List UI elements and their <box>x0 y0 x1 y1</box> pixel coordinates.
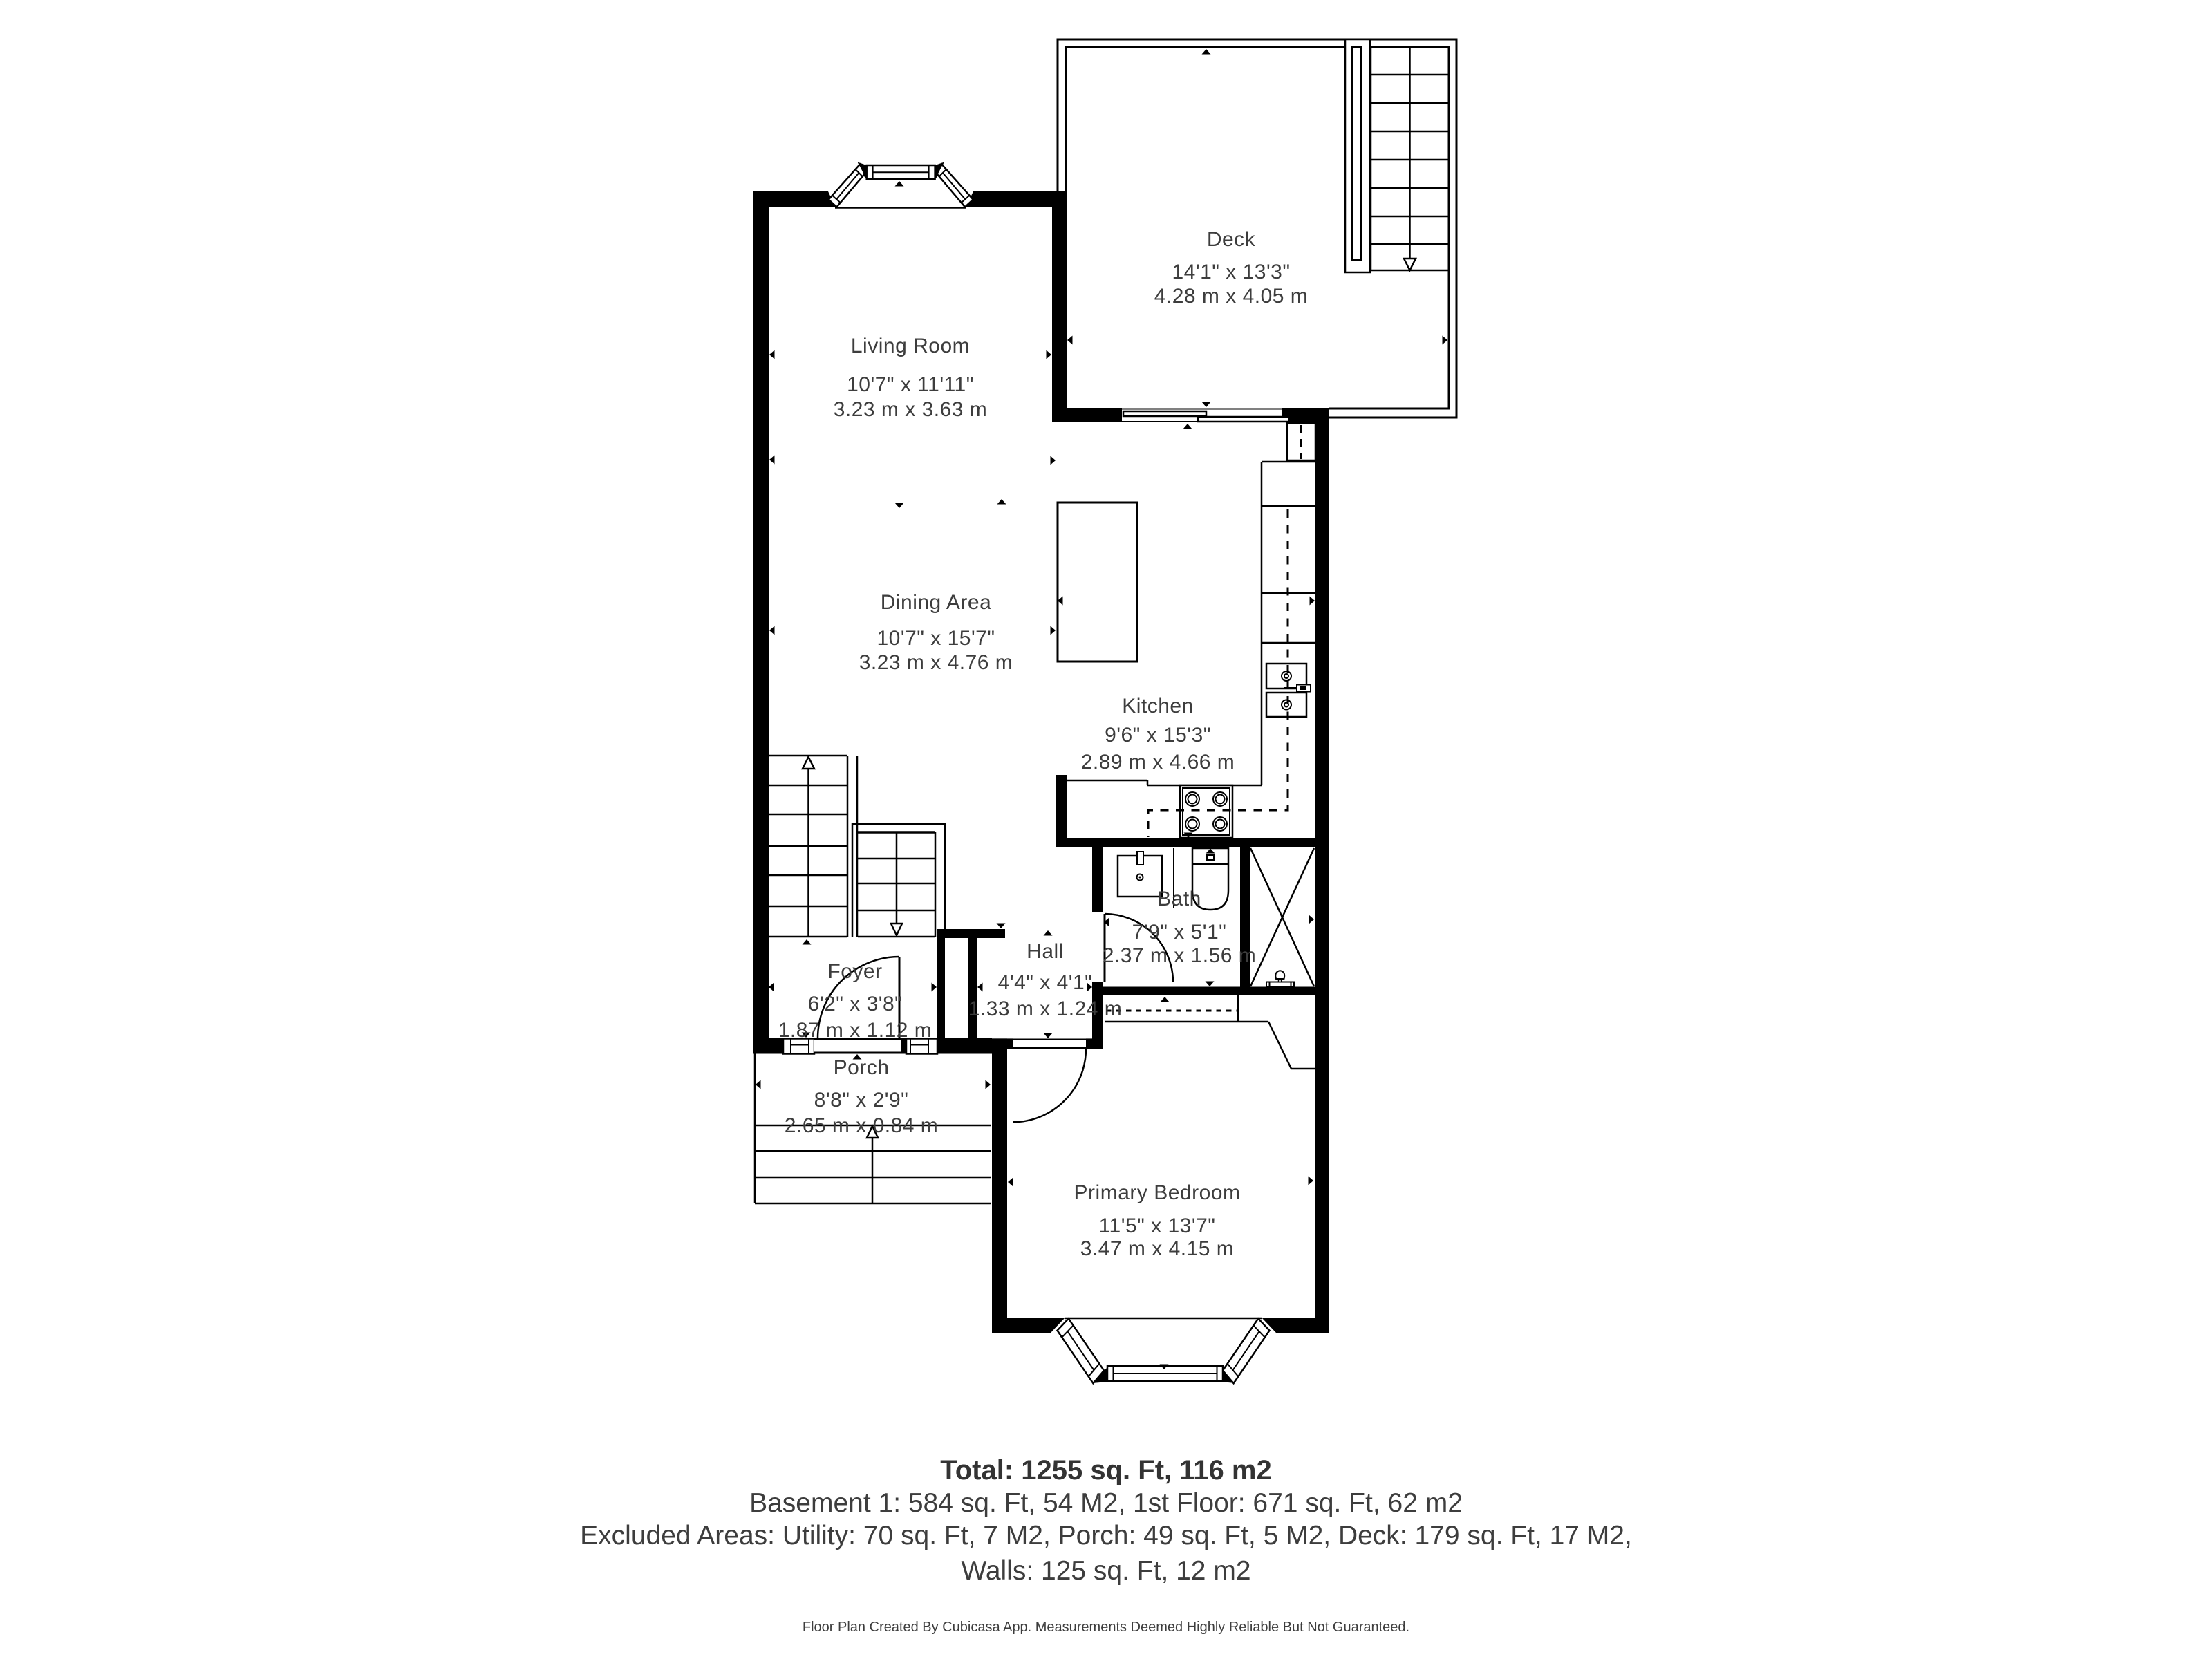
svg-text:2.65 m x 0.84 m: 2.65 m x 0.84 m <box>785 1114 939 1137</box>
svg-text:1.33 m x 1.24 m: 1.33 m x 1.24 m <box>968 997 1123 1020</box>
svg-text:7'9" x 5'1": 7'9" x 5'1" <box>1132 921 1227 944</box>
svg-text:10'7" x 11'11": 10'7" x 11'11" <box>847 373 974 396</box>
svg-text:2.89 m x 4.66 m: 2.89 m x 4.66 m <box>1081 751 1235 774</box>
svg-text:10'7" x 15'7": 10'7" x 15'7" <box>877 627 995 650</box>
svg-text:9'6" x 15'3": 9'6" x 15'3" <box>1105 724 1211 747</box>
svg-text:Kitchen: Kitchen <box>1122 695 1194 718</box>
svg-text:2.37 m x 1.56 m: 2.37 m x 1.56 m <box>1103 944 1257 967</box>
svg-text:Excluded Areas: Utility: 70 sq: Excluded Areas: Utility: 70 sq. Ft, 7 M2… <box>580 1521 1632 1550</box>
svg-text:14'1" x 13'3": 14'1" x 13'3" <box>1172 261 1290 283</box>
svg-text:11'5" x 13'7": 11'5" x 13'7" <box>1099 1215 1216 1237</box>
svg-text:Living Room: Living Room <box>851 335 970 357</box>
svg-text:Hall: Hall <box>1027 940 1064 963</box>
svg-text:Walls: 125 sq. Ft, 12 m2: Walls: 125 sq. Ft, 12 m2 <box>961 1556 1250 1586</box>
svg-text:Basement 1: 584 sq. Ft, 54 M2,: Basement 1: 584 sq. Ft, 54 M2, 1st Floor… <box>749 1488 1463 1518</box>
svg-text:Deck: Deck <box>1207 228 1256 251</box>
svg-text:Total: 1255 sq. Ft, 116 m2: Total: 1255 sq. Ft, 116 m2 <box>940 1455 1271 1485</box>
svg-text:4'4" x 4'1": 4'4" x 4'1" <box>998 971 1093 994</box>
svg-text:3.23 m x 3.63 m: 3.23 m x 3.63 m <box>834 398 988 421</box>
svg-text:3.23 m x 4.76 m: 3.23 m x 4.76 m <box>859 651 1013 674</box>
svg-text:Primary Bedroom: Primary Bedroom <box>1074 1181 1241 1204</box>
svg-text:Porch: Porch <box>834 1056 890 1079</box>
svg-text:4.28 m x 4.05 m: 4.28 m x 4.05 m <box>1154 285 1309 308</box>
svg-text:8'8" x 2'9": 8'8" x 2'9" <box>814 1089 909 1112</box>
svg-text:Floor Plan Created By Cubicasa: Floor Plan Created By Cubicasa App. Meas… <box>803 1620 1409 1635</box>
svg-text:3.47 m x 4.15 m: 3.47 m x 4.15 m <box>1080 1237 1235 1260</box>
svg-text:1.87 m x 1.12 m: 1.87 m x 1.12 m <box>778 1019 932 1042</box>
svg-text:6'2" x 3'8": 6'2" x 3'8" <box>808 993 903 1015</box>
svg-text:Bath: Bath <box>1157 888 1201 910</box>
svg-text:Dining Area: Dining Area <box>881 591 992 614</box>
svg-text:Foyer: Foyer <box>827 960 882 983</box>
